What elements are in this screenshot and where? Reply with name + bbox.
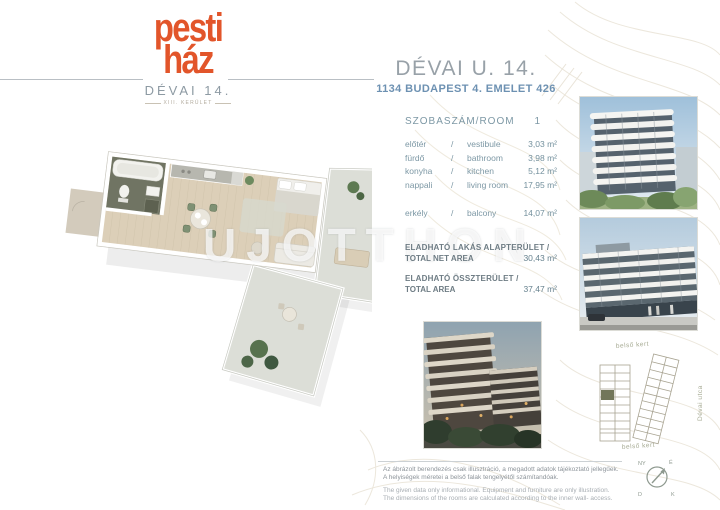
site-plan-label-street: Dévai utca (697, 385, 704, 421)
building-photo-2 (580, 218, 697, 330)
room-row: fürdő / bathroom 3,98 m² (405, 152, 557, 166)
site-plan: belső kert belső kert Dévai utca (598, 333, 716, 463)
room-label-hu: erkély (405, 207, 451, 221)
room-label-hu: konyha (405, 165, 451, 179)
room-table-title: SZOBASZÁM/ROOM (405, 116, 515, 127)
room-area: 17,95 m² (511, 179, 557, 193)
district-label: XIII. KERÜLET (164, 100, 213, 106)
logo-district: XIII. KERÜLET (140, 100, 236, 106)
compass-label-south: D (638, 492, 642, 498)
floor-plan-image (42, 132, 372, 417)
room-row: előtér / vestibule 3,03 m² (405, 138, 557, 152)
total-gross-label-en: TOTAL AREA (405, 284, 455, 295)
totals: ELADHATÓ LAKÁS ALAPTERÜLET / TOTAL NET A… (405, 242, 557, 304)
room-separator: / (451, 152, 467, 166)
room-row: nappali / living room 17,95 m² (405, 179, 557, 193)
logo-wordmark: pesti ház (149, 12, 228, 76)
brochure-page: pesti ház DÉVAI 14. XIII. KERÜLET DÉVAI … (0, 0, 720, 510)
district-dash-right (215, 103, 231, 104)
disclaimer-hu-line-1: Az ábrázolt berendezés csak illusztráció… (383, 466, 625, 474)
room-area: 3,98 m² (511, 152, 557, 166)
compass-label-north: É (669, 459, 673, 466)
total-net-value: 30,43 m² (523, 253, 557, 264)
compass: NY É D K (634, 452, 680, 500)
room-label-en: living room (467, 179, 511, 193)
disclaimer-divider (378, 461, 622, 462)
disclaimer-en-line-1: The given data only informational. Equip… (383, 487, 625, 495)
room-row: konyha / kitchen 5,12 m² (405, 165, 557, 179)
disclaimer: Az ábrázolt berendezés csak illusztráció… (383, 466, 625, 503)
room-count: 1 (534, 116, 557, 127)
room-label-en: bathroom (467, 152, 511, 166)
header-rule-left (0, 79, 143, 80)
room-label-hu: nappali (405, 179, 451, 193)
room-label-hu: előtér (405, 138, 451, 152)
room-separator: / (451, 207, 467, 221)
site-plan-label-garden-top: belső kert (616, 341, 650, 350)
compass-label-west: NY (638, 461, 646, 467)
site-plan-label-garden-bottom: belső kert (622, 442, 656, 451)
room-label-en: kitchen (467, 165, 511, 179)
total-net-label-en: TOTAL NET AREA (405, 253, 474, 264)
total-gross-area: ELADHATÓ ÖSSZTERÜLET / TOTAL AREA 37,47 … (405, 273, 557, 295)
site-plan-highlighted-unit (601, 390, 614, 400)
total-net-area: ELADHATÓ LAKÁS ALAPTERÜLET / TOTAL NET A… (405, 242, 557, 264)
room-row: erkély / balcony 14,07 m² (405, 207, 557, 221)
logo-project-name: DÉVAI 14. (140, 83, 236, 98)
room-separator: / (451, 165, 467, 179)
room-label-hu: fürdő (405, 152, 451, 166)
header-rule-right (228, 79, 374, 80)
building-photo-3 (424, 322, 541, 448)
page-subtitle: 1134 BUDAPEST 4. EMELET 426 (368, 83, 564, 95)
compass-label-east: K (671, 492, 675, 498)
total-gross-value: 37,47 m² (523, 284, 557, 295)
room-table: SZOBASZÁM/ROOM 1 előtér / vestibule 3,03… (405, 116, 557, 221)
building-photo-1 (580, 97, 697, 209)
room-area: 3,03 m² (511, 138, 557, 152)
room-separator: / (451, 138, 467, 152)
district-dash-left (145, 103, 161, 104)
disclaimer-en-line-2: The dimensions of the rooms are calculat… (383, 495, 625, 503)
room-area: 5,12 m² (511, 165, 557, 179)
room-label-en: balcony (467, 207, 511, 221)
room-separator: / (451, 179, 467, 193)
disclaimer-hu-line-2: A helyiségek méretei a belső falak tenge… (383, 474, 625, 482)
total-gross-label-hu: ELADHATÓ ÖSSZTERÜLET / (405, 273, 557, 284)
total-net-label-hu: ELADHATÓ LAKÁS ALAPTERÜLET / (405, 242, 557, 253)
title-block: DÉVAI U. 14. 1134 BUDAPEST 4. EMELET 426 (368, 57, 564, 95)
room-table-header: SZOBASZÁM/ROOM 1 (405, 116, 557, 127)
page-title: DÉVAI U. 14. (368, 57, 564, 81)
logo: pesti ház DÉVAI 14. XIII. KERÜLET (140, 12, 236, 106)
room-area: 14,07 m² (511, 207, 557, 221)
room-label-en: vestibule (467, 138, 511, 152)
compass-needle-icon (652, 468, 665, 483)
